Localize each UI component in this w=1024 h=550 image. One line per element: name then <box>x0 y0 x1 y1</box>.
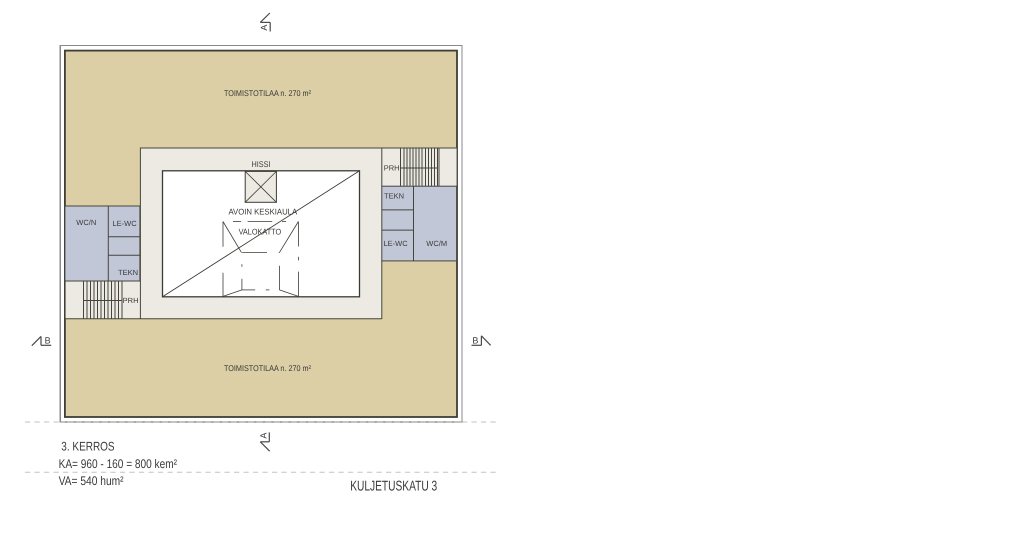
svg-text:B: B <box>472 335 478 345</box>
svg-text:HISSI: HISSI <box>252 159 271 169</box>
svg-text:LE-WC: LE-WC <box>384 239 409 248</box>
svg-text:PRH: PRH <box>384 164 400 173</box>
svg-text:KULJETUSKATU 3: KULJETUSKATU 3 <box>350 478 437 494</box>
svg-text:TOIMISTOTILAA n. 270 m²: TOIMISTOTILAA n. 270 m² <box>224 363 311 373</box>
svg-text:LE-WC: LE-WC <box>113 219 138 228</box>
svg-text:TEKN: TEKN <box>118 268 138 277</box>
svg-text:VALOKATTO: VALOKATTO <box>239 227 282 237</box>
svg-text:TOIMISTOTILAA n. 270 m²: TOIMISTOTILAA n. 270 m² <box>224 88 311 98</box>
svg-text:AVOIN KESKIAULA: AVOIN KESKIAULA <box>228 207 297 217</box>
svg-text:A: A <box>259 433 269 439</box>
svg-text:B: B <box>45 335 51 345</box>
svg-text:3. KERROS: 3. KERROS <box>61 439 114 453</box>
svg-text:TEKN: TEKN <box>384 191 404 200</box>
svg-text:A: A <box>259 25 269 31</box>
svg-text:PRH: PRH <box>123 296 139 305</box>
svg-text:VA= 540 hum²: VA= 540 hum² <box>59 474 124 488</box>
svg-text:WC/M: WC/M <box>426 239 447 248</box>
svg-text:KA= 960 - 160 = 800 kem²: KA= 960 - 160 = 800 kem² <box>59 457 177 471</box>
svg-text:WC/N: WC/N <box>76 218 96 227</box>
